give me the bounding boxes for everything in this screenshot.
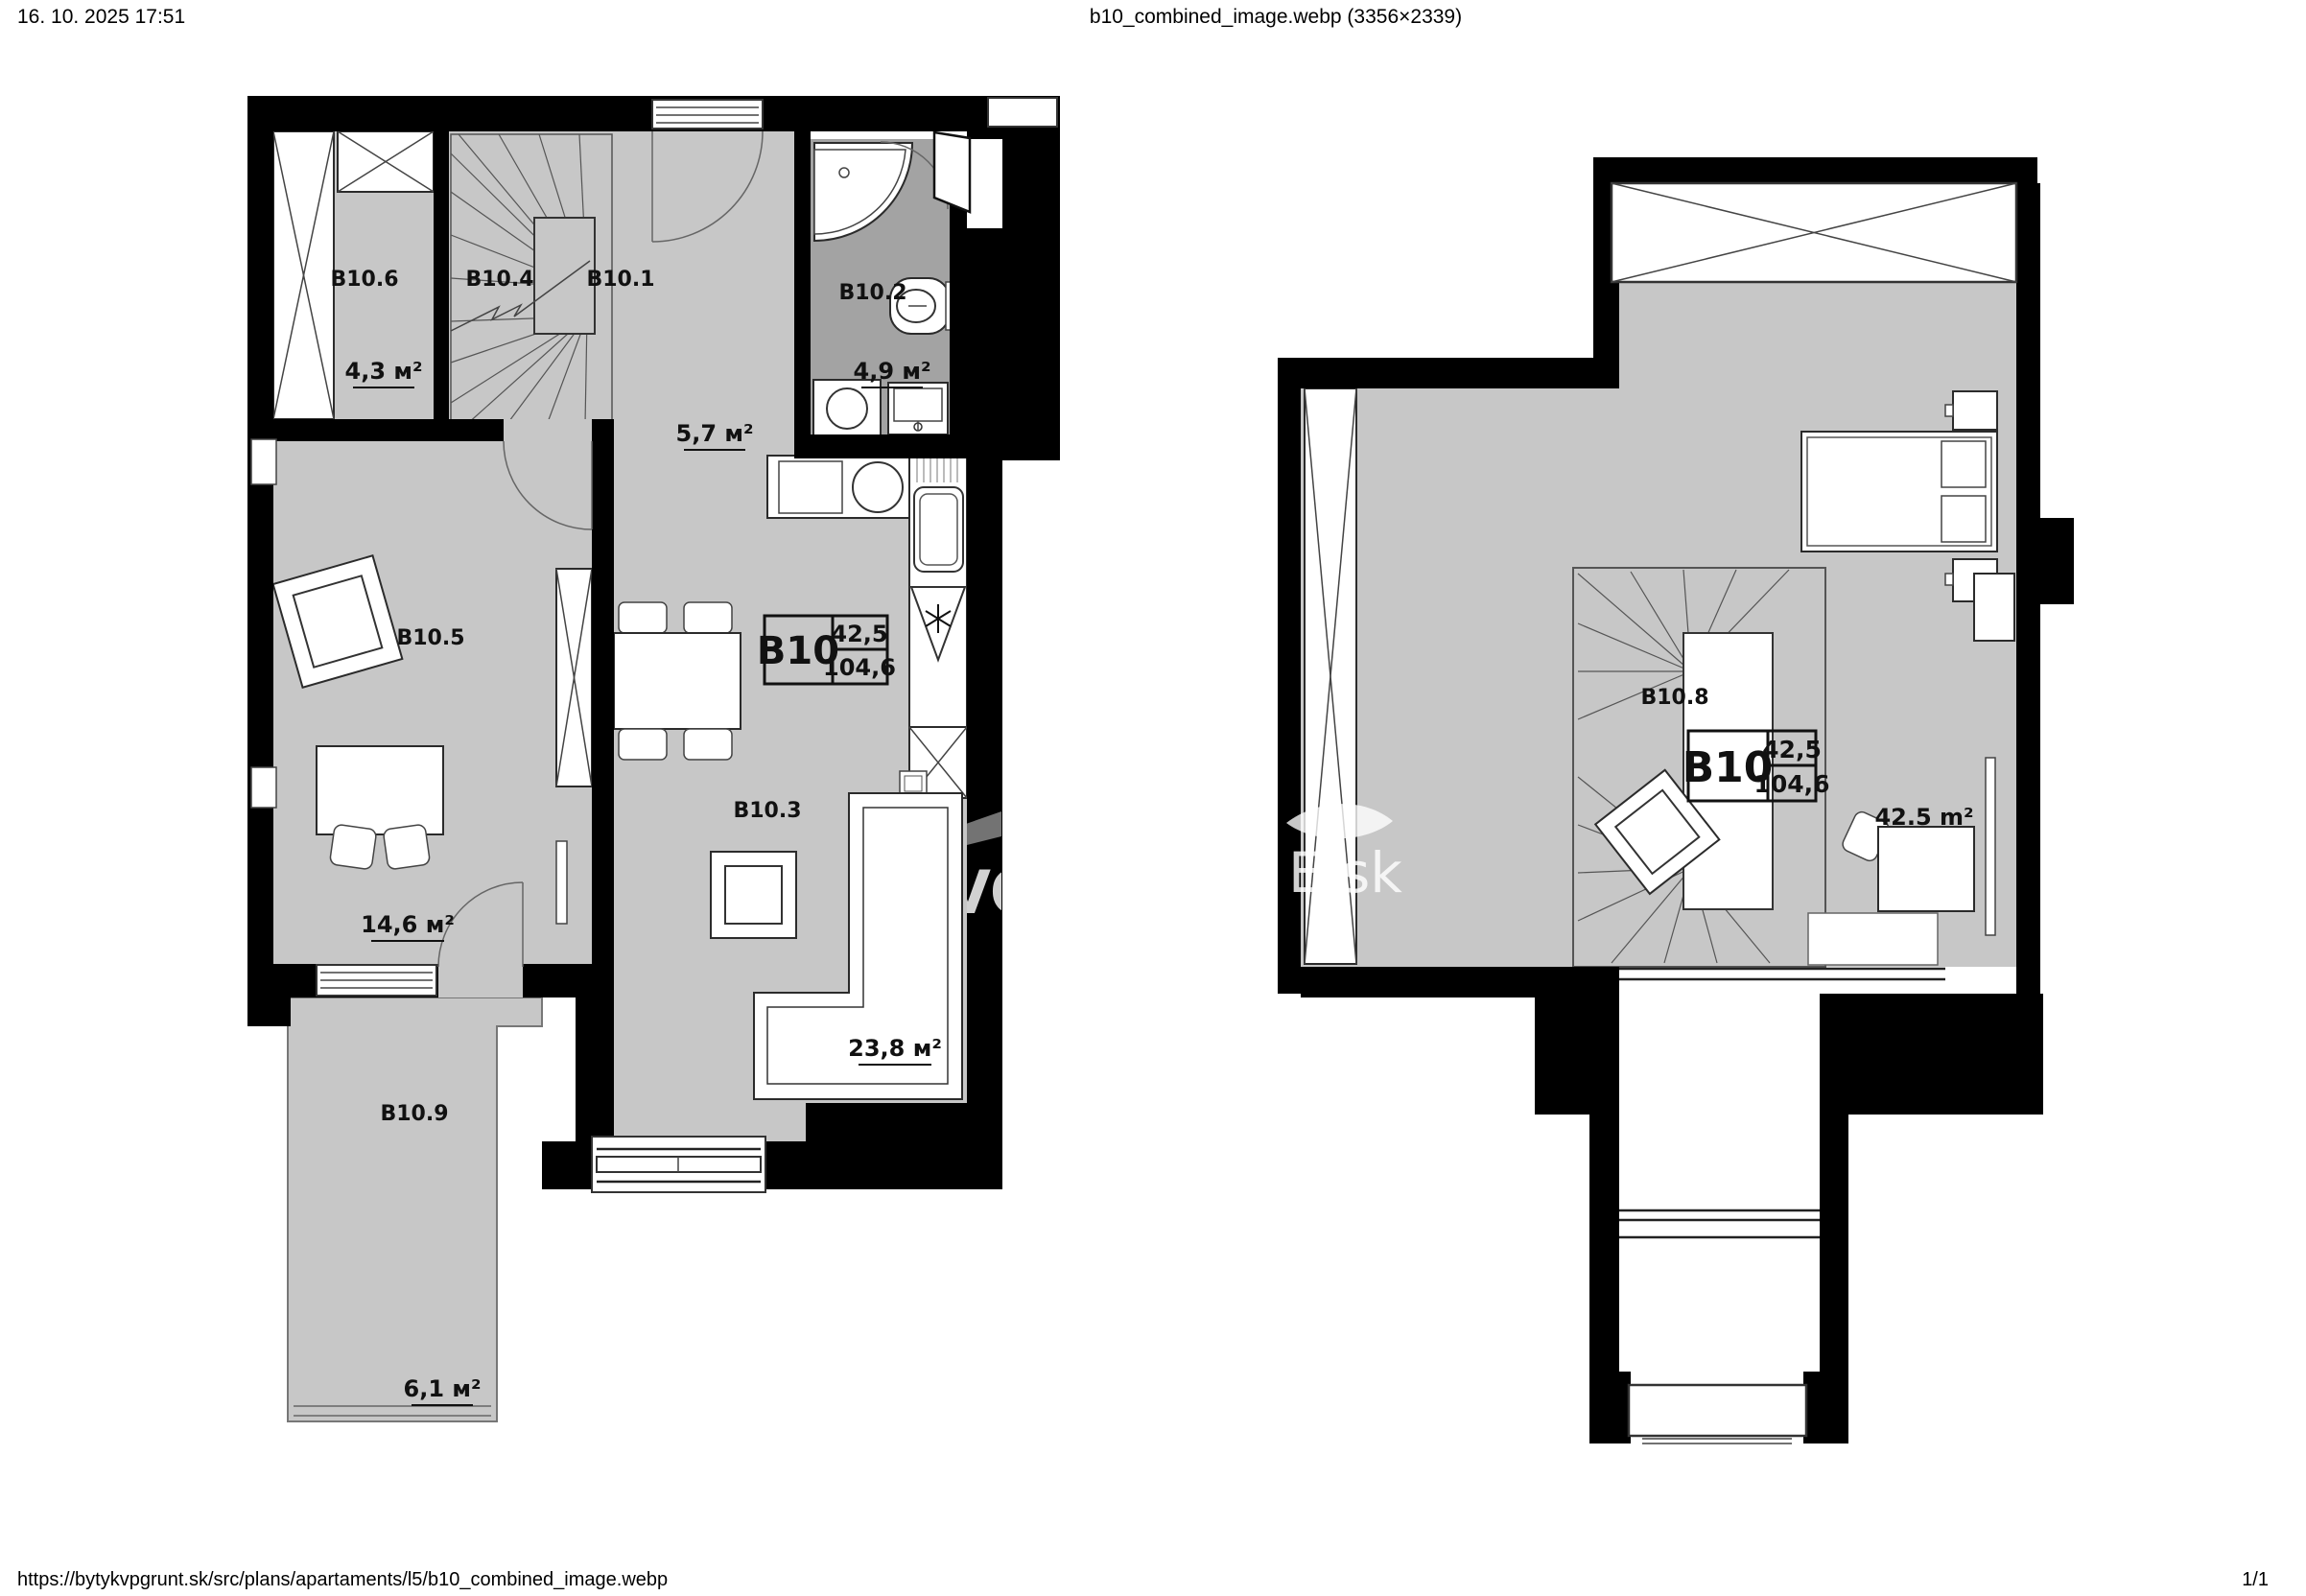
room-label-b109: B10.9	[380, 1102, 448, 1126]
unit-floor-area: 42,5	[1762, 736, 1822, 763]
area-label-b103: 23,8 м²	[848, 1035, 942, 1062]
coffee-table-icon	[711, 852, 796, 938]
pillow-icon	[1941, 441, 1986, 487]
glass-wall	[1619, 969, 1945, 979]
corridor-landing-lines	[1619, 1210, 1820, 1237]
wardrobe-b105-icon	[556, 569, 592, 786]
wardrobe-tall-icon	[273, 131, 334, 419]
terrace-floor	[288, 997, 542, 1421]
area-label-b105: 14,6 м²	[361, 911, 455, 938]
unit-total-area: 104,6	[1753, 770, 1829, 798]
watermark-right-fragment: E.sk	[1288, 840, 1402, 905]
chair-icon	[684, 602, 732, 633]
wall-niche-icon	[251, 767, 276, 808]
unit-total-area: 104,6	[823, 654, 896, 681]
nightstand-icon	[1945, 391, 1997, 430]
floor-plans-image: B10 42,5 104,6 B10.6 4,3 м² B10.4 B10.1 …	[0, 0, 2306, 1596]
dining-table-icon	[614, 633, 741, 729]
area-label-b109: 6,1 м²	[404, 1375, 482, 1402]
ground-floor-plan: B10 42,5 104,6 B10.6 4,3 м² B10.4 B10.1 …	[247, 96, 1060, 1421]
bathroom-sink-icon	[888, 383, 948, 434]
upper-top-window-icon	[1612, 183, 2016, 282]
room-label-b106: B10.6	[330, 268, 398, 292]
window-icon	[652, 100, 763, 129]
desk-chair-icon	[383, 824, 430, 870]
chair-icon	[619, 602, 667, 633]
footer-url: https://bytykvpgrunt.sk/src/plans/aparta…	[17, 1569, 668, 1591]
wall-niche-icon	[251, 439, 276, 484]
neighbor-window-icon	[988, 98, 1057, 127]
footer-page-indicator: 1/1	[2242, 1569, 2269, 1591]
oven-icon	[779, 461, 842, 513]
pillow-icon	[1941, 496, 1986, 542]
room-label-b108: B10.8	[1640, 686, 1708, 710]
floor-step	[1808, 913, 1938, 965]
chair-icon	[619, 729, 667, 760]
area-label-b101: 5,7 м²	[676, 420, 754, 447]
desk-icon	[1878, 827, 1974, 911]
radiator-icon	[1986, 758, 1995, 935]
room-label-b102: B10.2	[838, 281, 906, 305]
chair-icon	[684, 729, 732, 760]
room-label-b105: B10.5	[396, 626, 464, 650]
wall-cabinet-icon	[1974, 574, 2014, 641]
area-label-b106: 4,3 м²	[345, 358, 423, 385]
window-b105-icon	[317, 965, 436, 996]
desk-chair-icon	[329, 824, 376, 870]
desk-icon	[317, 746, 443, 834]
wardrobe-top-icon	[338, 131, 434, 192]
corridor-entry-door-icon	[1629, 1385, 1806, 1443]
window-b103-icon	[592, 1137, 765, 1192]
unit-floor-area: 42,5	[831, 621, 887, 647]
print-preview-page: 16. 10. 2025 17:51 b10_combined_image.we…	[0, 0, 2306, 1596]
room-label-b103: B10.3	[733, 799, 801, 823]
upper-floor-plan: B10 42,5 104,6 B10.8 42.5 m²	[1278, 157, 2074, 1443]
bed-icon	[1801, 432, 1997, 552]
room-label-b104: B10.4	[465, 268, 533, 292]
area-label-b102: 4,9 м²	[854, 358, 931, 385]
area-label-b108: 42.5 m²	[1874, 804, 1973, 831]
room-label-b101: B10.1	[586, 268, 654, 292]
